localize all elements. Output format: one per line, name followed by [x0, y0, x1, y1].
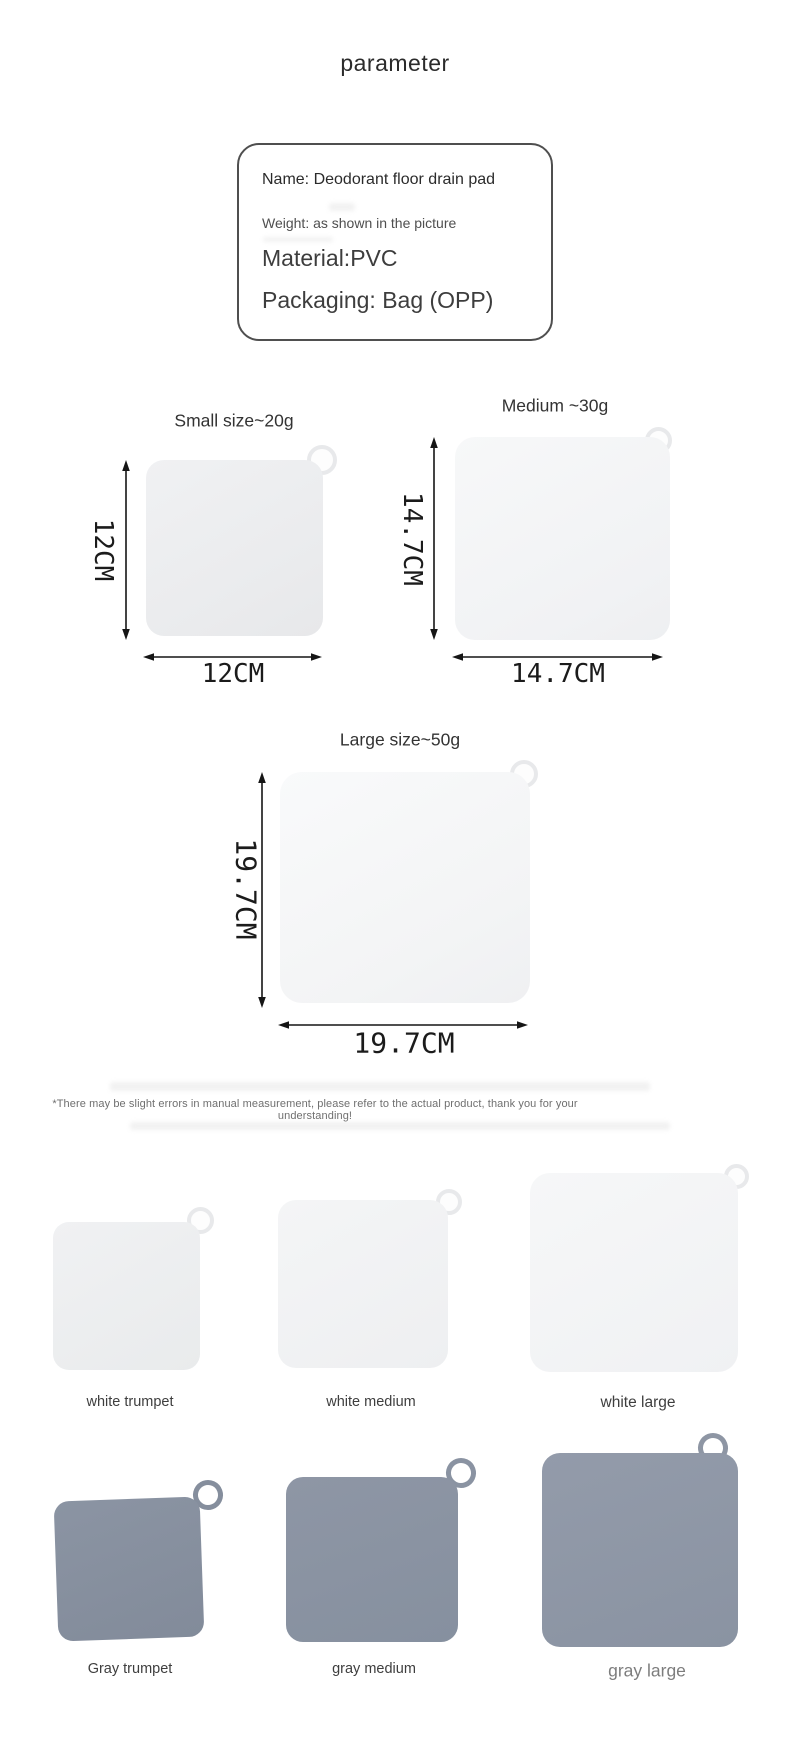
gray-large-pad — [542, 1453, 738, 1647]
small-size-label: Small size~20g — [174, 411, 293, 432]
small-pad-diagram — [146, 460, 323, 636]
large-width-dim: 19.7CM — [353, 1027, 454, 1060]
artifact-smudge — [130, 1122, 670, 1130]
large-height-dim: 19.7CM — [230, 838, 263, 939]
white-large-label: white large — [601, 1394, 676, 1412]
white-medium-pad — [278, 1200, 448, 1368]
product-packaging: Packaging: Bag (OPP) — [262, 287, 493, 314]
white-trumpet-label: white trumpet — [86, 1394, 173, 1410]
small-height-dim: 12CM — [88, 519, 118, 582]
page-title: parameter — [0, 50, 790, 77]
gray-trumpet-pad — [54, 1496, 205, 1641]
white-large-pad — [530, 1173, 738, 1372]
gray-medium-label: gray medium — [332, 1661, 416, 1677]
height-arrow — [428, 437, 440, 640]
gray-medium-pad — [286, 1477, 458, 1642]
medium-width-dim: 14.7CM — [511, 659, 605, 689]
white-trumpet-pad — [53, 1222, 200, 1370]
medium-size-label: Medium ~30g — [502, 396, 609, 417]
product-material: Material:PVC — [262, 245, 397, 272]
medium-height-dim: 14.7CM — [397, 492, 427, 586]
artifact-smudge — [329, 203, 355, 211]
parameter-info-box: Name: Deodorant floor drain pad Weight: … — [237, 143, 553, 341]
small-width-dim: 12CM — [202, 659, 265, 689]
large-size-label: Large size~50g — [340, 730, 460, 751]
measurement-disclaimer: *There may be slight errors in manual me… — [20, 1098, 610, 1122]
medium-pad-diagram — [455, 437, 670, 640]
product-parameter-sheet: parameter Name: Deodorant floor drain pa… — [0, 0, 790, 1750]
gray-large-label: gray large — [608, 1661, 686, 1682]
product-name: Name: Deodorant floor drain pad — [262, 171, 495, 189]
artifact-smudge — [110, 1082, 650, 1091]
white-medium-label: white medium — [326, 1394, 415, 1410]
gray-trumpet-label: Gray trumpet — [88, 1661, 173, 1677]
large-pad-diagram — [280, 772, 530, 1003]
artifact-smudge — [263, 237, 333, 242]
height-arrow — [120, 460, 132, 640]
product-weight: Weight: as shown in the picture — [262, 215, 456, 231]
